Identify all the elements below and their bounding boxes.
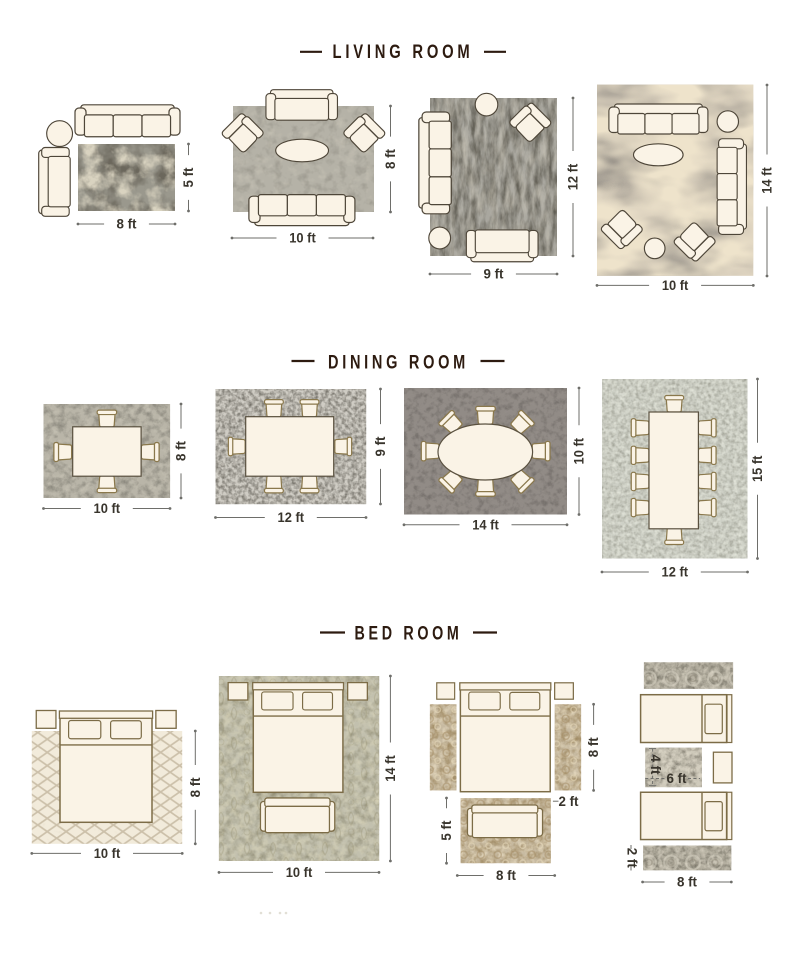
- svg-text:12 ft: 12 ft: [566, 163, 581, 190]
- svg-text:BED ROOM: BED ROOM: [355, 623, 463, 645]
- svg-text:5 ft: 5 ft: [181, 167, 196, 187]
- svg-text:8 ft: 8 ft: [586, 737, 601, 757]
- svg-text:9 ft: 9 ft: [484, 267, 504, 282]
- svg-text:8 ft: 8 ft: [174, 441, 189, 461]
- svg-text:10 ft: 10 ft: [286, 865, 313, 880]
- svg-text:15 ft: 15 ft: [750, 455, 765, 482]
- svg-text:8 ft: 8 ft: [117, 217, 137, 232]
- svg-text:8 ft: 8 ft: [496, 868, 516, 883]
- svg-text:8 ft: 8 ft: [188, 777, 203, 797]
- svg-text:8 ft: 8 ft: [383, 149, 398, 169]
- svg-text:10 ft: 10 ft: [662, 278, 689, 293]
- svg-text:6 ft: 6 ft: [667, 771, 687, 786]
- svg-text:12 ft: 12 ft: [662, 565, 689, 580]
- svg-text:10 ft: 10 ft: [289, 231, 316, 246]
- svg-text:4 ft: 4 ft: [648, 755, 663, 775]
- svg-text:10 ft: 10 ft: [572, 437, 587, 464]
- svg-text:DINING ROOM: DINING ROOM: [328, 352, 469, 374]
- svg-text:14 ft: 14 ft: [760, 167, 775, 194]
- svg-text:LIVING ROOM: LIVING ROOM: [333, 41, 474, 63]
- svg-text:8 ft: 8 ft: [677, 875, 697, 890]
- svg-text:12 ft: 12 ft: [278, 510, 305, 525]
- svg-text:10 ft: 10 ft: [94, 501, 121, 516]
- svg-text:14 ft: 14 ft: [383, 755, 398, 782]
- svg-text:10 ft: 10 ft: [94, 846, 121, 861]
- svg-text:2 ft: 2 ft: [559, 794, 579, 809]
- svg-text:2 ft: 2 ft: [625, 848, 640, 868]
- svg-text:9 ft: 9 ft: [373, 436, 388, 456]
- svg-text:14 ft: 14 ft: [472, 517, 499, 532]
- svg-text:5 ft: 5 ft: [439, 820, 454, 840]
